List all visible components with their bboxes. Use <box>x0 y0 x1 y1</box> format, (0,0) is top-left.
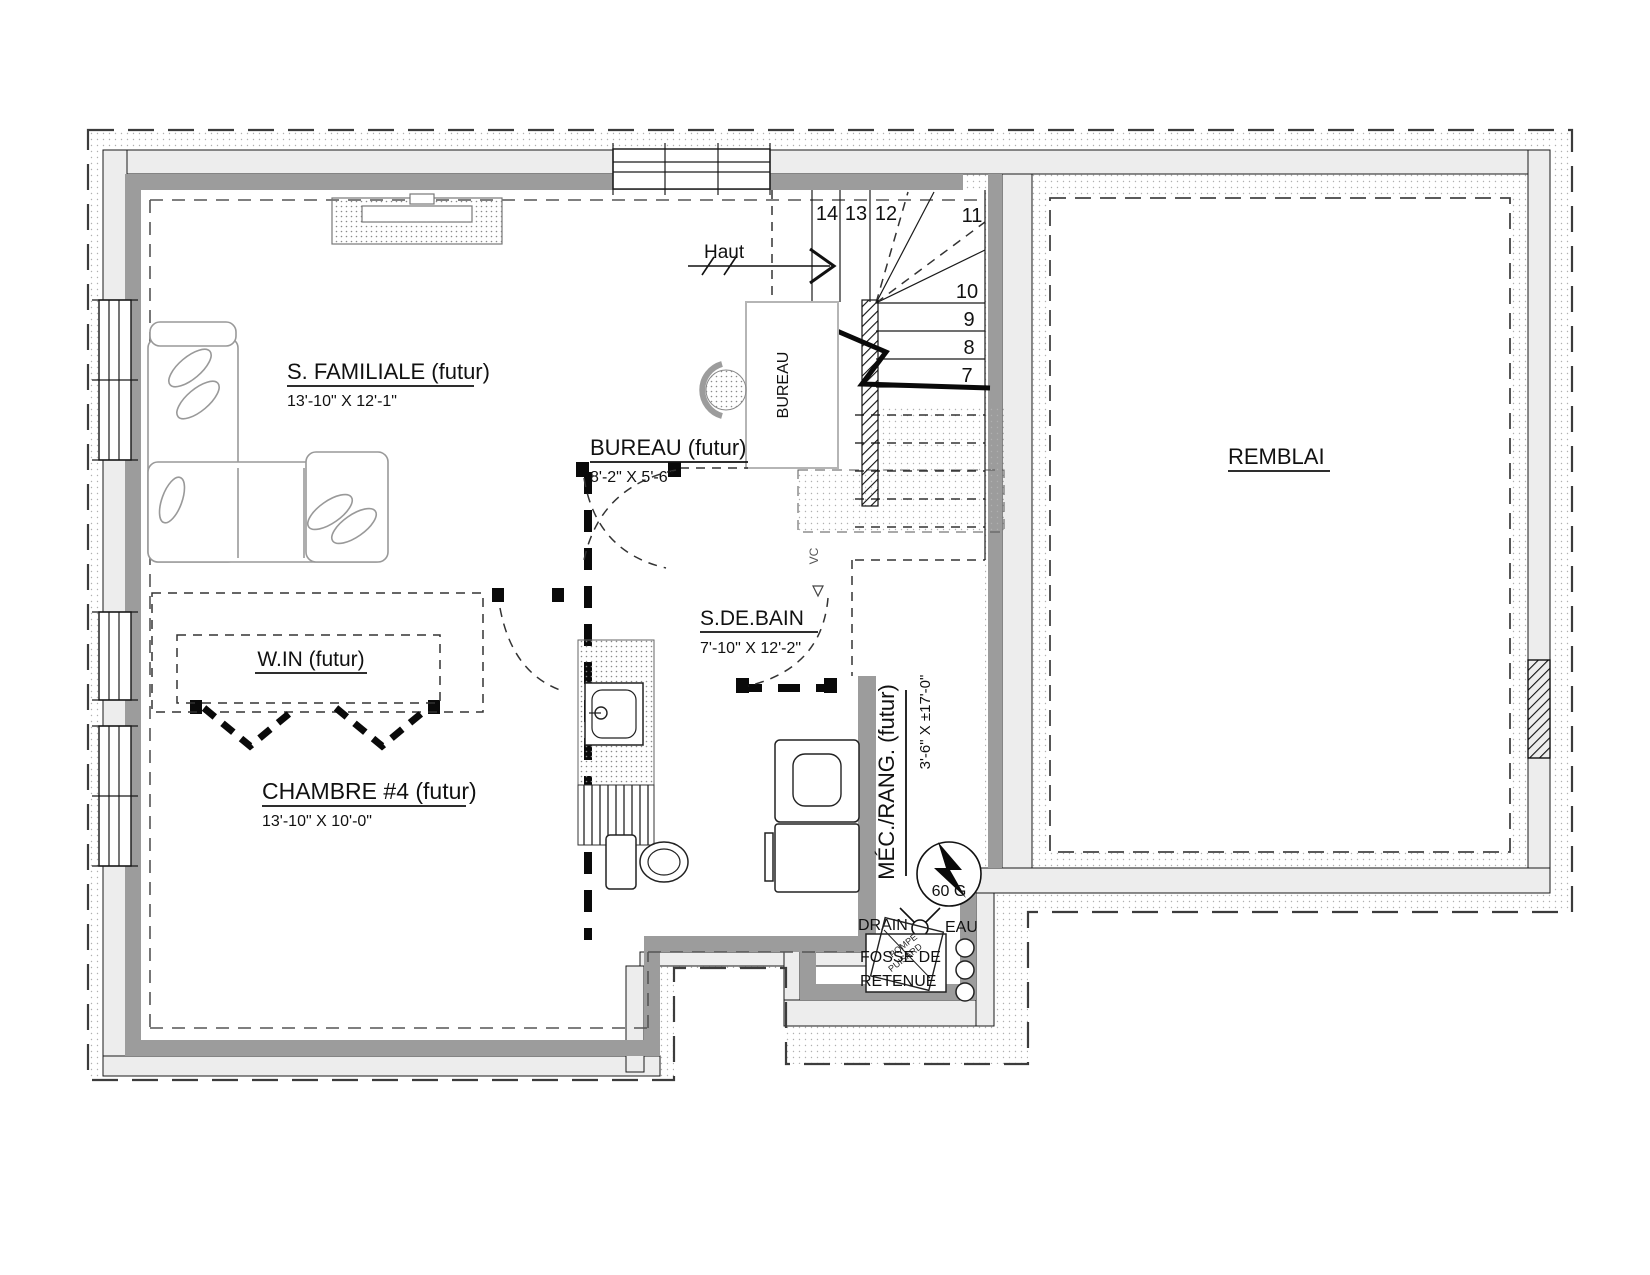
window-top <box>613 143 770 195</box>
window-left-3 <box>92 726 138 866</box>
floor-plan-drawing: 14 13 12 11 10 9 8 7 Haut BUREAU <box>0 0 1650 1275</box>
remblai-label: REMBLAI <box>1228 444 1325 469</box>
stair-riser-12: 12 <box>875 203 897 225</box>
stair-riser-8: 8 <box>963 337 974 359</box>
chambre-dims: 13'-10" X 10'-0" <box>262 813 372 830</box>
dryer <box>775 740 859 822</box>
bureau-dims: 8'-2" X 5'-6" <box>590 469 673 486</box>
stair-riser-9: 9 <box>963 309 974 331</box>
right-wall-hatched-segment <box>1528 660 1550 758</box>
mec-label: MÉC./RANG. (futur) <box>874 684 899 880</box>
walkin-label: W.IN (futur) <box>257 648 364 671</box>
wc-roughin-label: VC <box>807 547 821 564</box>
familiale-dims: 13'-10" X 12'-1" <box>287 393 397 410</box>
mec-dims: 3'-6" X ±17'-0" <box>917 675 934 770</box>
tv-console <box>332 194 502 244</box>
floor-plan-page: 14 13 12 11 10 9 8 7 Haut BUREAU <box>0 0 1650 1275</box>
window-left-1 <box>92 300 138 460</box>
vanity-sink <box>585 683 643 745</box>
stair-landing-footing <box>798 470 1004 532</box>
desk-chair <box>706 370 746 410</box>
familiale-label: S. FAMILIALE (futur) <box>287 359 490 384</box>
bureau-label: BUREAU (futur) <box>590 435 746 460</box>
stair-riser-13: 13 <box>845 203 867 225</box>
water-connections <box>956 939 974 1001</box>
bureau-desk <box>746 302 838 468</box>
stair-riser-11: 11 <box>962 205 983 227</box>
bain-dims: 7'-10" X 12'-2" <box>700 640 801 657</box>
stair-bearing-wall-hatched <box>862 300 878 506</box>
laundry-appliances <box>765 740 859 892</box>
bain-label: S.DE.BAIN <box>700 607 804 630</box>
sump-label-line1: FOSSE DE <box>860 949 941 966</box>
bureau-desk-label: BUREAU <box>775 352 792 419</box>
stair-up-label: Haut <box>704 242 745 263</box>
washer-door-open <box>765 833 773 881</box>
stair-riser-10: 10 <box>956 281 978 303</box>
window-left-2 <box>92 612 138 700</box>
washer <box>775 824 859 892</box>
water-label: EAU <box>945 919 978 936</box>
chambre-label: CHAMBRE #4 (futur) <box>262 778 477 804</box>
stair-riser-7: 7 <box>961 365 972 387</box>
sump-label-line2: RETENUE <box>860 973 936 990</box>
water-heater-label: 60 G <box>932 883 967 900</box>
stair-riser-14: 14 <box>816 203 838 225</box>
